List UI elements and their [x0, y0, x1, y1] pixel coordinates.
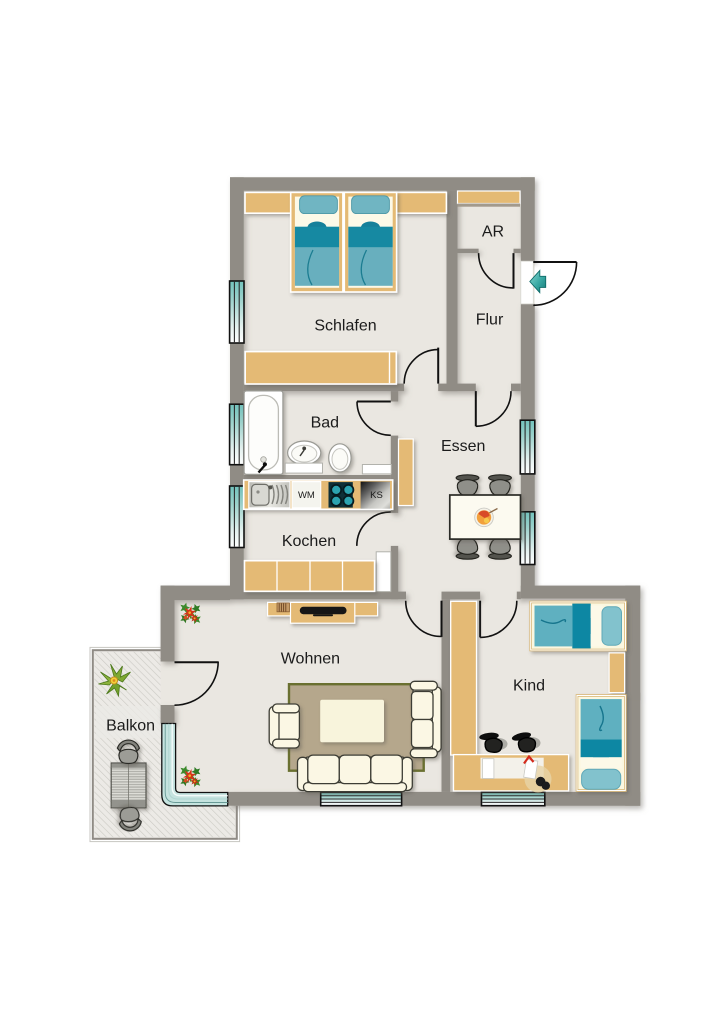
svg-text:Bad: Bad: [311, 414, 339, 431]
svg-text:Kochen: Kochen: [282, 533, 336, 550]
svg-text:AR: AR: [482, 223, 504, 240]
svg-text:Flur: Flur: [476, 311, 504, 328]
svg-text:KS: KS: [370, 490, 383, 501]
svg-text:Wohnen: Wohnen: [281, 650, 340, 667]
svg-text:Balkon: Balkon: [106, 718, 155, 735]
svg-text:WM: WM: [298, 490, 315, 501]
svg-text:Schlafen: Schlafen: [314, 318, 376, 335]
svg-text:Kind: Kind: [513, 678, 545, 695]
svg-text:Essen: Essen: [441, 438, 485, 455]
